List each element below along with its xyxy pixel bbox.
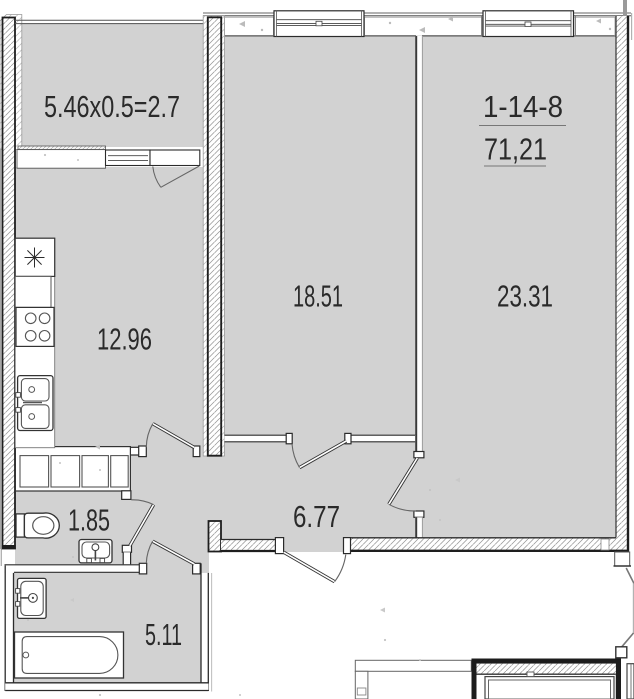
svg-text:23.31: 23.31 [497,279,553,314]
svg-text:1-14-8: 1-14-8 [483,89,563,124]
svg-text:1.85: 1.85 [68,503,110,538]
svg-text:12.96: 12.96 [97,322,152,357]
svg-text:71,21: 71,21 [484,132,547,167]
svg-text:18.51: 18.51 [293,279,343,314]
svg-text:6.77: 6.77 [293,499,340,534]
svg-text:5.11: 5.11 [145,617,182,652]
svg-text:5.46x0.5=2.7: 5.46x0.5=2.7 [44,89,180,124]
